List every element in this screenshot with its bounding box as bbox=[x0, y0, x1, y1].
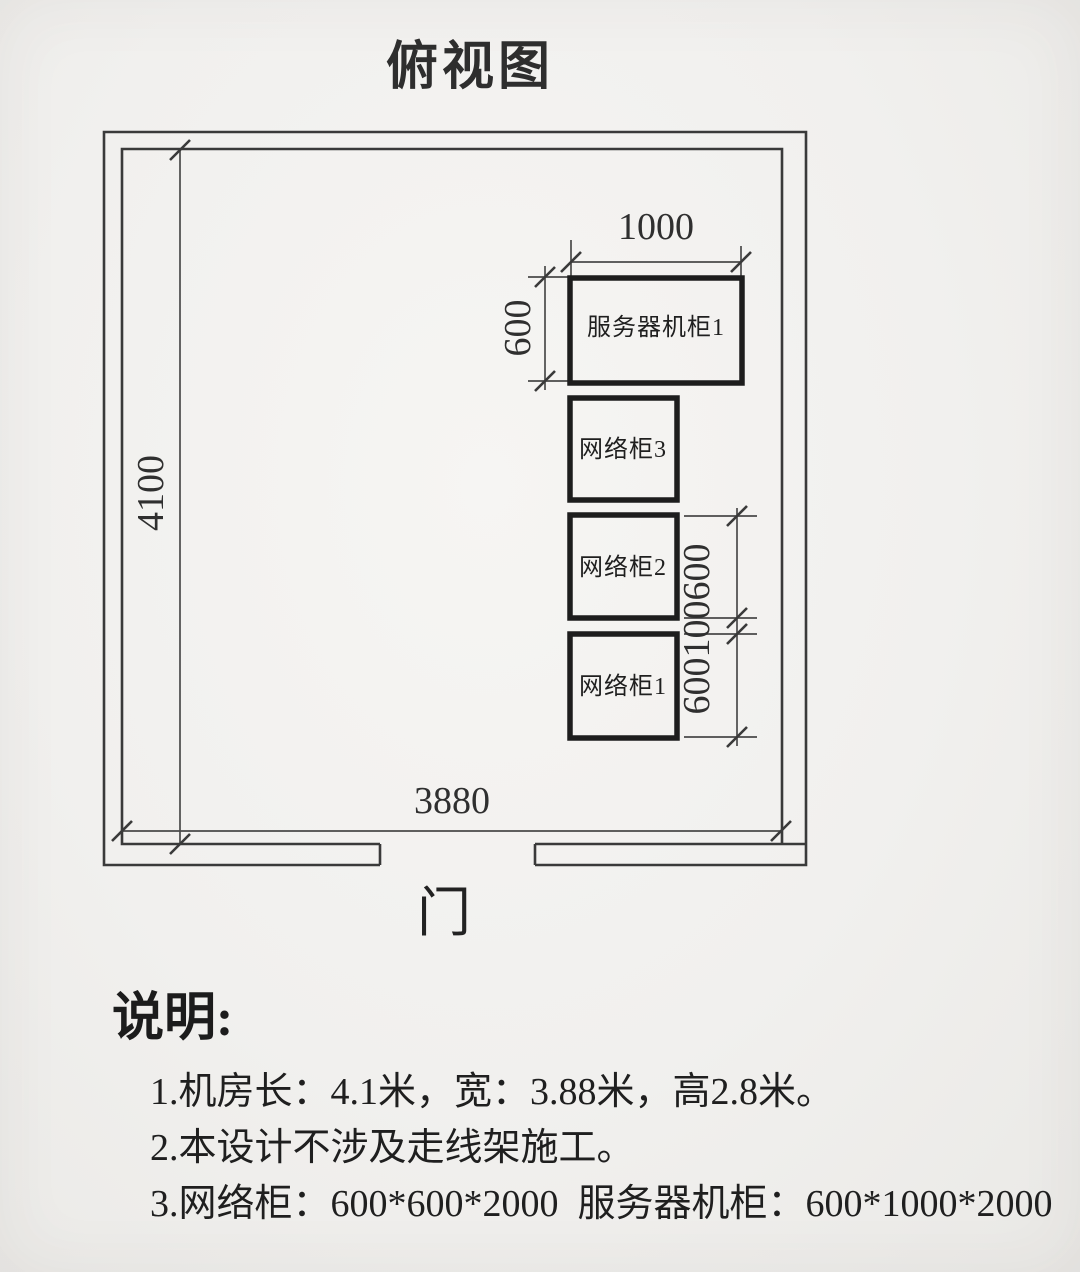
note-line-3: 3.网络柜：600*600*2000 服务器机柜：600*1000*2000 bbox=[150, 1185, 1053, 1223]
dim-label-server-width: 1000 bbox=[618, 208, 694, 246]
dim-label-spacing-top: 600 bbox=[678, 544, 716, 601]
network-cabinet-1-label: 网络柜1 bbox=[579, 675, 667, 699]
drawing-title: 俯视图 bbox=[386, 42, 554, 94]
network-cabinet-2-label: 网络柜2 bbox=[579, 556, 667, 580]
network-cabinet-3-label: 网络柜3 bbox=[579, 438, 667, 462]
dim-label-room-width: 3880 bbox=[414, 782, 490, 820]
door-label: 门 bbox=[417, 886, 471, 940]
outer-wall bbox=[104, 132, 806, 865]
dim-label-spacing-middle: 100 bbox=[678, 601, 716, 658]
notes-heading: 说明: bbox=[112, 993, 233, 1045]
note-line-1: 1.机房长：4.1米，宽：3.88米，高2.8米。 bbox=[150, 1073, 834, 1111]
room-walls bbox=[104, 132, 806, 865]
dim-label-spacing-bottom: 600 bbox=[678, 658, 716, 715]
note-line-2: 2.本设计不涉及走线架施工。 bbox=[150, 1129, 635, 1167]
dim-label-server-depth: 600 bbox=[499, 300, 537, 357]
dimension-lines bbox=[122, 150, 781, 844]
server-cabinet-label: 服务器机柜1 bbox=[587, 316, 725, 340]
dim-label-room-length: 4100 bbox=[132, 455, 170, 531]
floorplan-page: 俯视图 1000 600 服务器机柜1 4100 网络柜3 网络柜2 网络柜1 … bbox=[0, 0, 1080, 1272]
inner-wall bbox=[122, 149, 782, 844]
door-jambs bbox=[380, 844, 535, 865]
